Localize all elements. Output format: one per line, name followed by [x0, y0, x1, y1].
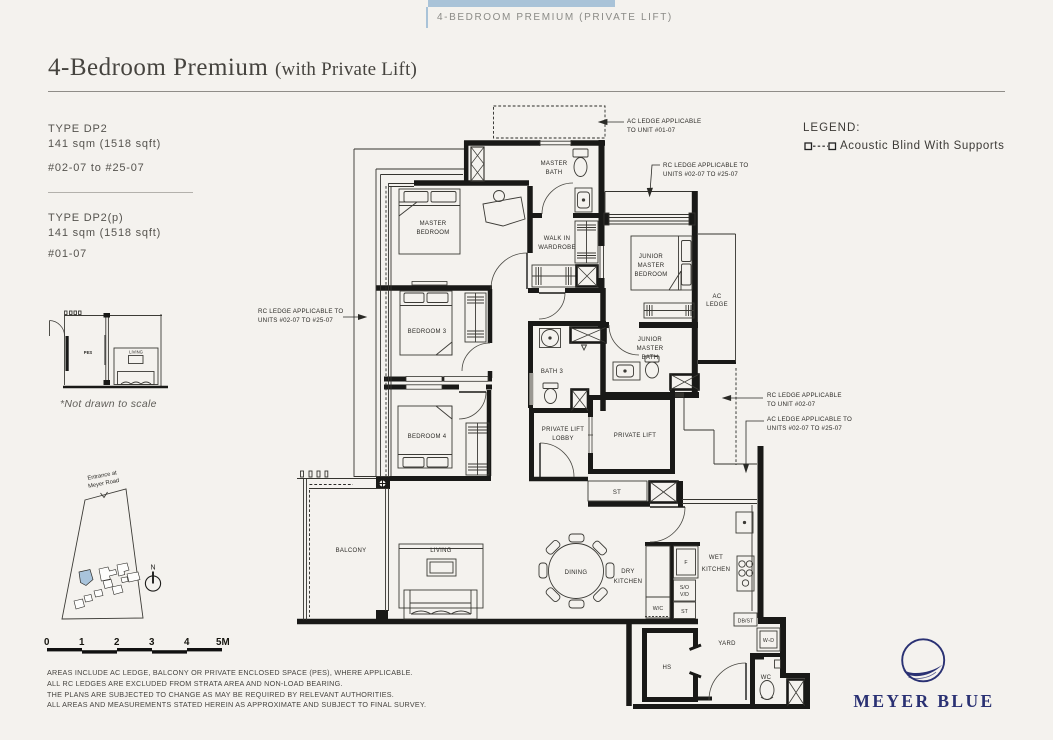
svg-text:LIVING: LIVING [129, 350, 143, 355]
svg-text:BATH 3: BATH 3 [541, 369, 564, 375]
svg-text:PRIVATE LIFT: PRIVATE LIFT [542, 427, 584, 433]
svg-text:DRY: DRY [621, 569, 634, 575]
svg-text:KITCHEN: KITCHEN [614, 579, 642, 585]
svg-text:AC LEDGE APPLICABLE: AC LEDGE APPLICABLE [627, 118, 701, 125]
svg-text:KITCHEN: KITCHEN [702, 567, 730, 573]
svg-text:UNITS #02-07 TO #25-07: UNITS #02-07 TO #25-07 [663, 171, 738, 178]
svg-text:BALCONY: BALCONY [336, 548, 367, 554]
svg-text:ST: ST [681, 609, 689, 615]
svg-text:N: N [150, 565, 155, 572]
svg-text:LEDGE: LEDGE [706, 302, 728, 308]
svg-text:RC LEDGE APPLICABLE TO: RC LEDGE APPLICABLE TO [663, 162, 748, 169]
svg-text:F: F [684, 560, 687, 566]
svg-text:LIVING: LIVING [430, 548, 452, 554]
svg-text:MASTER: MASTER [420, 221, 447, 227]
svg-text:4: 4 [184, 637, 190, 648]
svg-text:RC LEDGE APPLICABLE TO: RC LEDGE APPLICABLE TO [258, 308, 343, 315]
svg-text:PRIVATE LIFT: PRIVATE LIFT [614, 433, 656, 439]
svg-text:PES: PES [84, 350, 93, 355]
svg-text:BATH: BATH [642, 355, 659, 361]
svg-text:BATH: BATH [546, 170, 563, 176]
svg-text:RC LEDGE APPLICABLE: RC LEDGE APPLICABLE [767, 392, 842, 399]
svg-text:V/D: V/D [680, 592, 689, 598]
svg-text:JUNIOR: JUNIOR [638, 337, 662, 343]
svg-text:S/O: S/O [680, 585, 689, 591]
svg-text:TO UNIT #02-07: TO UNIT #02-07 [767, 401, 816, 408]
svg-text:WARDROBE: WARDROBE [538, 245, 576, 251]
svg-text:AC: AC [713, 294, 722, 300]
svg-text:JUNIOR: JUNIOR [639, 254, 663, 260]
svg-text:MASTER: MASTER [638, 263, 665, 269]
svg-text:BEDROOM: BEDROOM [634, 272, 667, 278]
svg-text:1: 1 [79, 637, 85, 648]
svg-text:LOBBY: LOBBY [552, 436, 574, 442]
svg-text:W/C: W/C [653, 606, 664, 612]
svg-text:HS: HS [663, 665, 672, 671]
svg-text:UNITS #02-07 TO #25-07: UNITS #02-07 TO #25-07 [258, 317, 333, 324]
svg-text:BEDROOM 3: BEDROOM 3 [408, 329, 447, 335]
svg-text:BEDROOM 4: BEDROOM 4 [408, 434, 447, 440]
svg-text:DB/ST: DB/ST [738, 619, 755, 625]
svg-text:AC LEDGE APPLICABLE TO: AC LEDGE APPLICABLE TO [767, 416, 852, 423]
svg-text:BEDROOM: BEDROOM [416, 230, 449, 236]
svg-text:YARD: YARD [718, 641, 736, 647]
svg-text:MASTER: MASTER [637, 346, 664, 352]
svg-text:W+D: W+D [763, 638, 774, 644]
svg-text:0: 0 [44, 637, 50, 648]
svg-text:DINING: DINING [565, 570, 588, 576]
svg-text:ST: ST [613, 490, 621, 496]
svg-text:2: 2 [114, 637, 120, 648]
svg-text:MASTER: MASTER [541, 161, 568, 167]
svg-text:3: 3 [149, 637, 155, 648]
svg-text:WET: WET [709, 555, 723, 561]
svg-text:WC: WC [761, 675, 772, 681]
svg-text:WALK IN: WALK IN [544, 236, 571, 242]
svg-text:5M: 5M [216, 637, 230, 648]
svg-text:TO UNIT #01-07: TO UNIT #01-07 [627, 127, 676, 134]
svg-text:UNITS #02-07 TO #25-07: UNITS #02-07 TO #25-07 [767, 425, 842, 432]
